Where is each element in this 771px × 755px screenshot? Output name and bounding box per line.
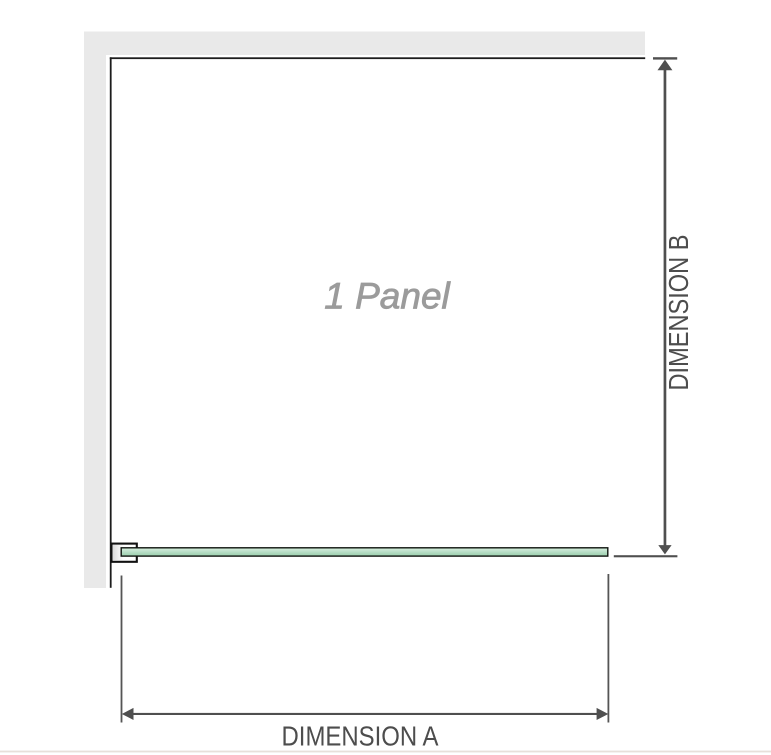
svg-text:DIMENSION B: DIMENSION B xyxy=(663,235,694,391)
svg-text:DIMENSION A: DIMENSION A xyxy=(282,721,439,752)
svg-text:1 Panel: 1 Panel xyxy=(324,276,451,317)
